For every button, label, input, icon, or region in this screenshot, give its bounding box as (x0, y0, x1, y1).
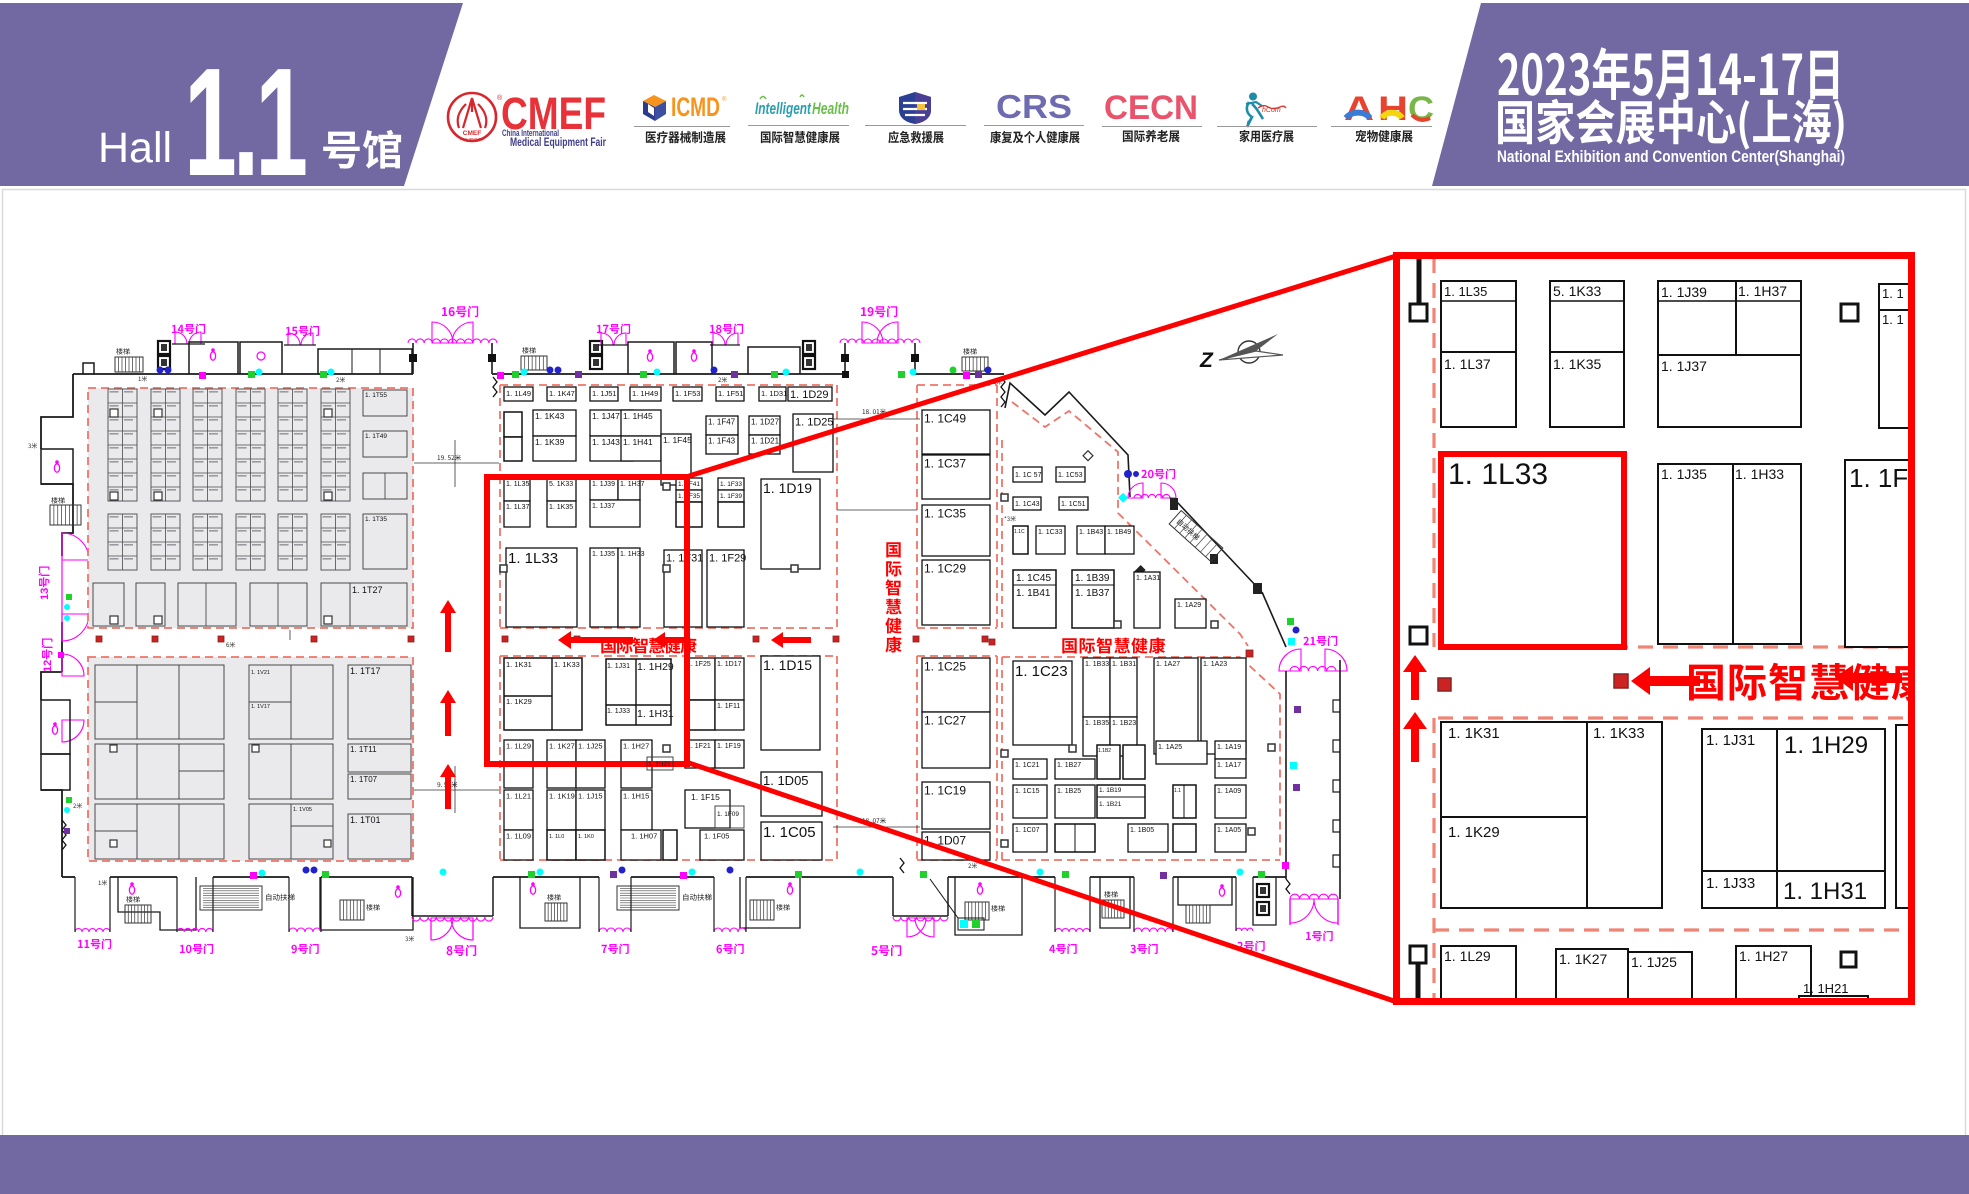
svg-text:1. 1H45: 1. 1H45 (623, 411, 653, 421)
svg-text:1. 1T35: 1. 1T35 (365, 516, 387, 523)
svg-text:1. 1T55: 1. 1T55 (365, 392, 387, 399)
svg-text:1.1C: 1.1C (1014, 529, 1025, 535)
svg-text:1. 1L37: 1. 1L37 (1444, 356, 1491, 372)
svg-text:1. 1C33: 1. 1C33 (1038, 529, 1063, 536)
svg-text:1. 1B35: 1. 1B35 (1085, 720, 1109, 727)
svg-text:1. 1F21: 1. 1F21 (687, 743, 711, 750)
svg-text:1. 1A27: 1. 1A27 (1156, 661, 1180, 668)
svg-text:1. 1H37: 1. 1H37 (1738, 283, 1787, 299)
svg-text:1. 1B31: 1. 1B31 (1112, 661, 1136, 668)
svg-text:1. 1J25: 1. 1J25 (1631, 954, 1677, 970)
svg-text:1. 1H27: 1. 1H27 (623, 741, 649, 750)
svg-text:1. 1B41: 1. 1B41 (1016, 588, 1051, 599)
svg-text:1. 1L29: 1. 1L29 (1444, 948, 1491, 964)
svg-text:1. 1C 57: 1. 1C 57 (1015, 472, 1042, 479)
svg-text:1. 1F: 1. 1F (1849, 463, 1908, 493)
svg-text:1. 1L21: 1. 1L21 (506, 791, 531, 800)
svg-text:Intelligent: Intelligent (755, 100, 812, 118)
svg-text:1. 1J37: 1. 1J37 (1661, 358, 1707, 374)
svg-text:13号门: 13号门 (37, 566, 51, 600)
svg-text:1. 1K27: 1. 1K27 (549, 741, 575, 750)
svg-text:1. 1H31: 1. 1H31 (637, 708, 674, 720)
svg-text:1. 1K27: 1. 1K27 (1559, 951, 1607, 967)
svg-text:1. 1F39: 1. 1F39 (720, 493, 742, 500)
svg-text:1. 1D15: 1. 1D15 (763, 657, 812, 673)
svg-text:1. 1B27: 1. 1B27 (1057, 762, 1081, 769)
svg-text:1. 1J47: 1. 1J47 (592, 411, 620, 421)
svg-text:1. 1C05: 1. 1C05 (763, 824, 816, 841)
svg-text:1. 1H49: 1. 1H49 (632, 389, 658, 398)
svg-text:1.1: 1.1 (1174, 788, 1181, 794)
svg-text:1. 1B23: 1. 1B23 (1112, 720, 1136, 727)
svg-text:1. 1D05: 1. 1D05 (763, 773, 809, 788)
svg-text:1. 1L49: 1. 1L49 (506, 389, 531, 398)
svg-text:1. 1T49: 1. 1T49 (365, 433, 387, 440)
svg-text:1. 1C07: 1. 1C07 (1015, 827, 1040, 834)
svg-text:1. 1D25: 1. 1D25 (795, 416, 834, 428)
svg-text:1. 1K29: 1. 1K29 (506, 697, 532, 706)
svg-text:1. 1C51: 1. 1C51 (1061, 501, 1086, 508)
svg-text:1. 1A23: 1. 1A23 (1203, 661, 1227, 668)
svg-text:CRS: CRS (996, 88, 1072, 125)
svg-text:1. 1H29: 1. 1H29 (1784, 732, 1868, 759)
svg-text:C: C (1408, 90, 1434, 128)
svg-text:1. 1F53: 1. 1F53 (675, 389, 700, 398)
svg-text:1. 1J35: 1. 1J35 (592, 551, 615, 558)
svg-text:1. 1L0: 1. 1L0 (549, 834, 564, 840)
svg-text:®: ® (722, 96, 727, 103)
svg-text:1. 1C21: 1. 1C21 (1015, 762, 1040, 769)
svg-text:CECN: CECN (1104, 89, 1198, 127)
svg-text:1. 1F19: 1. 1F19 (717, 743, 741, 750)
svg-text:H: H (1378, 90, 1408, 128)
svg-text:1. 1J33: 1. 1J33 (607, 708, 630, 715)
svg-text:1. 1K19: 1. 1K19 (549, 791, 575, 800)
svg-text:Health: Health (812, 100, 849, 118)
svg-text:1. 1J39: 1. 1J39 (1661, 284, 1707, 300)
svg-text:1. 1L37: 1. 1L37 (506, 504, 529, 511)
svg-text:1. 1A29: 1. 1A29 (1177, 602, 1201, 609)
svg-text:1. 1F05: 1. 1F05 (704, 831, 729, 840)
svg-text:Z: Z (1199, 349, 1214, 372)
svg-text:1. 1H21: 1. 1H21 (1803, 981, 1849, 996)
svg-text:1. 1L35: 1. 1L35 (506, 481, 529, 488)
svg-text:1. 1J51: 1. 1J51 (592, 389, 617, 398)
svg-text:1. 1C37: 1. 1C37 (924, 456, 966, 470)
svg-text:1. 1A05: 1. 1A05 (1217, 827, 1241, 834)
svg-text:CMEF: CMEF (463, 130, 481, 137)
svg-text:1. 1A19: 1. 1A19 (1217, 744, 1241, 751)
svg-text:1. 1J35: 1. 1J35 (1661, 466, 1707, 482)
svg-text:1. 1F11: 1. 1F11 (717, 703, 740, 710)
svg-text:National Exhibition and Conven: National Exhibition and Convention Cente… (1497, 148, 1845, 166)
svg-text:1. 1H15: 1. 1H15 (623, 791, 649, 800)
svg-text:1. 1T27: 1. 1T27 (352, 585, 383, 595)
svg-text:1. 1T07: 1. 1T07 (350, 775, 378, 784)
svg-text:1. 1A25: 1. 1A25 (1158, 744, 1182, 751)
svg-text:1. 1J31: 1. 1J31 (607, 663, 630, 670)
svg-text:1. 1C53: 1. 1C53 (1058, 472, 1083, 479)
svg-text:1. 1J15: 1. 1J15 (578, 791, 603, 800)
svg-text:1. 1L33: 1. 1L33 (1448, 458, 1548, 491)
svg-text:1. 1D17: 1. 1D17 (717, 661, 742, 668)
svg-text:1. 1C43: 1. 1C43 (1015, 501, 1040, 508)
svg-text:1. 1C29: 1. 1C29 (924, 561, 966, 575)
svg-text:1. 1T01: 1. 1T01 (350, 815, 381, 825)
svg-text:1. 1K35: 1. 1K35 (549, 504, 573, 511)
svg-text:hCom: hCom (1262, 107, 1281, 114)
svg-text:1. 1V05: 1. 1V05 (293, 807, 312, 813)
svg-text:1.1: 1.1 (184, 37, 306, 209)
svg-text:1. 1D19: 1. 1D19 (763, 480, 812, 496)
svg-text:12号门: 12号门 (40, 638, 54, 672)
svg-text:1. 1C19: 1. 1C19 (924, 783, 966, 797)
svg-text:1. 1H33: 1. 1H33 (620, 551, 645, 558)
svg-text:1. 1H33: 1. 1H33 (1735, 466, 1784, 482)
svg-text:1. 1B37: 1. 1B37 (1075, 588, 1110, 599)
svg-text:1. 1F43: 1. 1F43 (708, 437, 736, 446)
svg-text:ICMD: ICMD (671, 92, 720, 122)
svg-text:1. 1V21: 1. 1V21 (251, 670, 270, 676)
svg-text:1. 1J31: 1. 1J31 (1706, 732, 1755, 749)
svg-text:1. 1J39: 1. 1J39 (592, 481, 615, 488)
svg-text:1.1B2: 1.1B2 (1098, 748, 1111, 754)
svg-text:1. 1B05: 1. 1B05 (1130, 827, 1154, 834)
svg-text:1. 1B21: 1. 1B21 (1099, 801, 1122, 808)
svg-text:1. 1B19: 1. 1B19 (1099, 787, 1122, 794)
svg-text:1. 1K29: 1. 1K29 (1448, 824, 1500, 841)
svg-text:1. 1L33: 1. 1L33 (508, 550, 558, 567)
svg-text:1. 1A09: 1. 1A09 (1217, 788, 1241, 795)
svg-text:1. 1D21: 1. 1D21 (751, 437, 780, 446)
svg-text:1. 1K43: 1. 1K43 (535, 411, 565, 421)
svg-text:1. 1F45: 1. 1F45 (663, 435, 692, 445)
svg-text:1. 1B49: 1. 1B49 (1107, 529, 1131, 536)
svg-text:1. 1J43: 1. 1J43 (592, 437, 620, 447)
svg-text:1. 1H31: 1. 1H31 (1783, 878, 1867, 905)
svg-text:1. 1C35: 1. 1C35 (924, 506, 966, 520)
svg-text:1. 1F47: 1. 1F47 (708, 418, 736, 427)
svg-text:1. 1T17: 1. 1T17 (350, 666, 381, 676)
svg-text:1. 1C25: 1. 1C25 (924, 659, 966, 673)
svg-text:1. 1F29: 1. 1F29 (709, 552, 746, 564)
svg-text:1. 1H21: 1. 1H21 (648, 761, 671, 768)
svg-text:Medical Equipment Fair: Medical Equipment Fair (510, 137, 606, 149)
svg-text:1. 1H37: 1. 1H37 (620, 481, 645, 488)
svg-text:1. 1F51: 1. 1F51 (718, 389, 743, 398)
svg-text:1. 1K33: 1. 1K33 (554, 660, 580, 669)
svg-text:1. 1D27: 1. 1D27 (751, 418, 780, 427)
svg-text:1. 1H07: 1. 1H07 (631, 831, 657, 840)
svg-text:PHILIPPINES: PHILIPPINES (460, 138, 484, 142)
svg-text:1. 1B43: 1. 1B43 (1079, 529, 1103, 536)
svg-text:1. 1L29: 1. 1L29 (506, 741, 531, 750)
svg-text:1. 1: 1. 1 (1882, 286, 1904, 301)
svg-text:1. 1C15: 1. 1C15 (1015, 788, 1040, 795)
svg-text:5. 1K33: 5. 1K33 (549, 481, 573, 488)
svg-text:1. 1K39: 1. 1K39 (535, 437, 565, 447)
svg-text:1. 1B33: 1. 1B33 (1085, 661, 1109, 668)
svg-text:1. 1K0: 1. 1K0 (578, 834, 594, 840)
svg-text:1. 1H29: 1. 1H29 (637, 661, 674, 673)
svg-text:1. 1L35: 1. 1L35 (1444, 284, 1487, 299)
svg-text:1. 1: 1. 1 (1882, 312, 1904, 327)
svg-text:1. 1F25: 1. 1F25 (687, 661, 711, 668)
svg-text:5. 1K33: 5. 1K33 (1553, 283, 1601, 299)
svg-text:1. 1A17: 1. 1A17 (1217, 762, 1241, 769)
svg-text:1. 1K31: 1. 1K31 (506, 660, 532, 669)
svg-text:1. 1K35: 1. 1K35 (1553, 356, 1601, 372)
svg-text:1. 1L09: 1. 1L09 (506, 831, 531, 840)
svg-text:1. 1J33: 1. 1J33 (1706, 875, 1755, 892)
svg-text:1. 1B39: 1. 1B39 (1075, 573, 1110, 584)
svg-text:1. 1K47: 1. 1K47 (549, 389, 575, 398)
svg-text:1. 1J25: 1. 1J25 (578, 741, 603, 750)
svg-text:1. 1K33: 1. 1K33 (1593, 725, 1645, 742)
svg-text:A: A (1344, 90, 1374, 128)
svg-text:1. 1J37: 1. 1J37 (592, 503, 615, 510)
svg-text:1. 1V17: 1. 1V17 (251, 704, 270, 710)
svg-text:1. 1K31: 1. 1K31 (1448, 725, 1500, 742)
svg-text:1. 1H27: 1. 1H27 (1739, 948, 1788, 964)
svg-text:1. 1C49: 1. 1C49 (924, 411, 966, 425)
svg-text:1. 1F33: 1. 1F33 (720, 481, 742, 488)
svg-text:1. 1C23: 1. 1C23 (1015, 663, 1068, 680)
svg-text:1. 1C45: 1. 1C45 (1016, 573, 1051, 584)
svg-text:1. 1F15: 1. 1F15 (691, 792, 720, 802)
svg-text:1. 1C27: 1. 1C27 (924, 713, 966, 727)
svg-text:1. 1A31: 1. 1A31 (1136, 575, 1160, 582)
svg-text:1. 1B25: 1. 1B25 (1057, 788, 1081, 795)
svg-text:1. 1D29: 1. 1D29 (790, 389, 829, 401)
svg-text:1. 1D31: 1. 1D31 (761, 389, 787, 398)
svg-text:1. 1T11: 1. 1T11 (350, 745, 377, 754)
svg-text:1. 1F09: 1. 1F09 (717, 811, 739, 818)
svg-text:Hall: Hall (98, 124, 172, 172)
svg-text:1. 1H41: 1. 1H41 (623, 437, 653, 447)
